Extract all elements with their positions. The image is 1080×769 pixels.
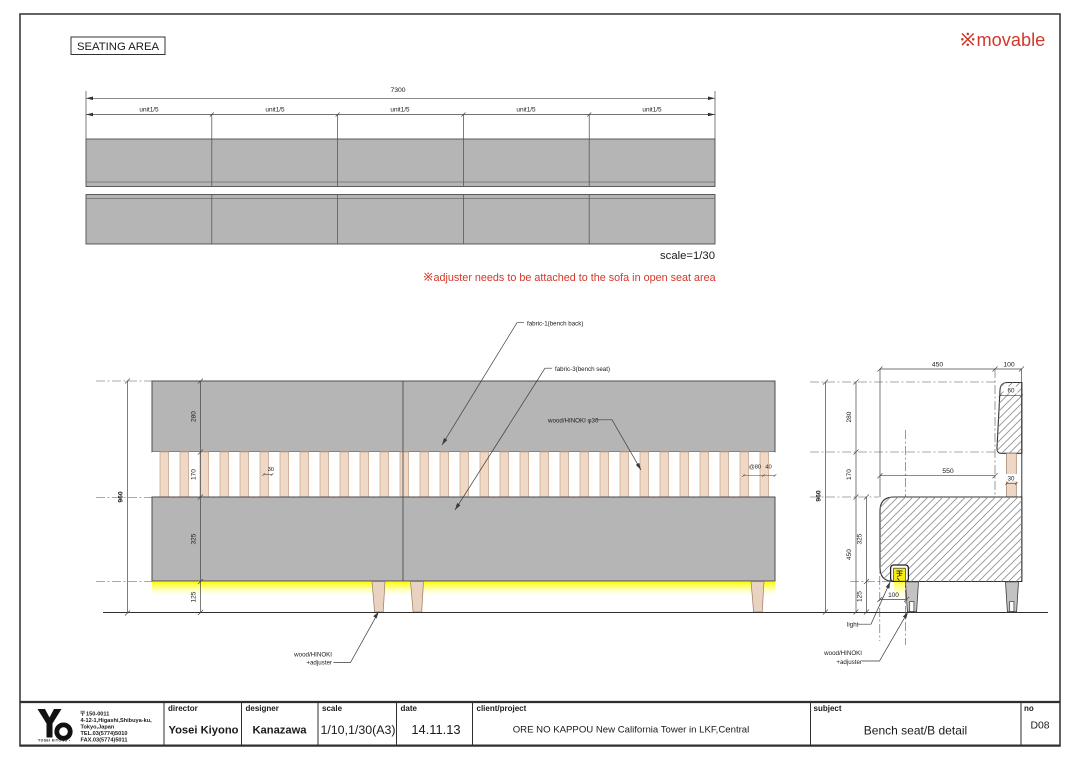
svg-text:100: 100 [888, 592, 899, 599]
svg-text:light: light [847, 622, 859, 629]
svg-text:YOSEI KIYONO ▪: YOSEI KIYONO ▪ [38, 739, 70, 743]
svg-text:@80: @80 [749, 465, 761, 471]
svg-text:150-0011: 150-0011 [86, 712, 109, 718]
svg-text:no: no [1024, 704, 1034, 713]
svg-text:30: 30 [1008, 475, 1015, 482]
svg-text:date: date [401, 704, 418, 713]
svg-text:7300: 7300 [390, 87, 405, 94]
svg-text:designer: designer [246, 704, 279, 713]
svg-text:fabric-3(bench seat): fabric-3(bench seat) [555, 366, 610, 373]
svg-text:scale: scale [322, 704, 343, 713]
svg-text:100: 100 [1003, 362, 1015, 369]
svg-text:450: 450 [846, 549, 853, 560]
svg-text:subject: subject [814, 704, 842, 713]
svg-text:client/project: client/project [477, 704, 527, 713]
svg-text:170: 170 [846, 469, 853, 480]
svg-text:wood/HINOKI: wood/HINOKI [293, 652, 332, 659]
svg-text:30: 30 [268, 467, 274, 473]
svg-text:SEATING AREA: SEATING AREA [77, 41, 159, 53]
svg-text:960: 960 [816, 490, 823, 502]
svg-text:unit1/5: unit1/5 [139, 107, 159, 114]
svg-text:FAX.03(5774)5011: FAX.03(5774)5011 [81, 738, 128, 744]
svg-text:280: 280 [846, 411, 853, 422]
svg-text:Yosei Kiyono: Yosei Kiyono [168, 725, 238, 737]
svg-text:TEL.03(5774)5010: TEL.03(5774)5010 [81, 731, 128, 737]
svg-text:125: 125 [191, 591, 198, 602]
svg-text:wood/HINOKI φ30: wood/HINOKI φ30 [547, 417, 599, 424]
svg-text:+adjuster: +adjuster [306, 660, 332, 667]
svg-text:1/10,1/30(A3): 1/10,1/30(A3) [320, 723, 395, 737]
svg-text:unit1/5: unit1/5 [642, 107, 662, 114]
svg-text:unit1/5: unit1/5 [516, 107, 536, 114]
svg-text:unit1/5: unit1/5 [390, 107, 410, 114]
svg-text:Kanazawa: Kanazawa [252, 725, 307, 737]
svg-text:ORE NO KAPPOU New California T: ORE NO KAPPOU New California Tower in LK… [513, 725, 750, 736]
svg-text:550: 550 [942, 468, 954, 475]
svg-text:Tokyo,Japan: Tokyo,Japan [81, 725, 115, 731]
svg-text:unit1/5: unit1/5 [265, 107, 285, 114]
svg-text:4-12-1,Higashi,Shibuya-ku,: 4-12-1,Higashi,Shibuya-ku, [81, 718, 153, 724]
svg-text:14.11.13: 14.11.13 [411, 722, 460, 737]
svg-text:170: 170 [191, 469, 198, 480]
svg-text:director: director [168, 704, 198, 713]
svg-text:40: 40 [765, 465, 771, 471]
svg-text:325: 325 [191, 533, 198, 544]
svg-text:125: 125 [857, 591, 864, 602]
svg-text:scale=1/30: scale=1/30 [660, 250, 715, 262]
svg-text:fabric-1(bench back): fabric-1(bench back) [527, 321, 583, 328]
svg-text:325: 325 [857, 533, 864, 544]
svg-text:adjuster needs to be attached: adjuster needs to be attached to the sof… [434, 272, 716, 284]
svg-text:movable: movable [977, 30, 1046, 50]
svg-text:wood/HINOKI: wood/HINOKI [823, 650, 862, 657]
svg-text:Bench seat/B detail: Bench seat/B detail [864, 724, 967, 738]
svg-text:D08: D08 [1031, 721, 1050, 732]
svg-text:960: 960 [118, 491, 125, 503]
svg-text:280: 280 [191, 411, 198, 422]
svg-text:60: 60 [1008, 387, 1015, 394]
svg-text:+adjuster: +adjuster [836, 659, 862, 666]
svg-text:450: 450 [932, 362, 944, 369]
